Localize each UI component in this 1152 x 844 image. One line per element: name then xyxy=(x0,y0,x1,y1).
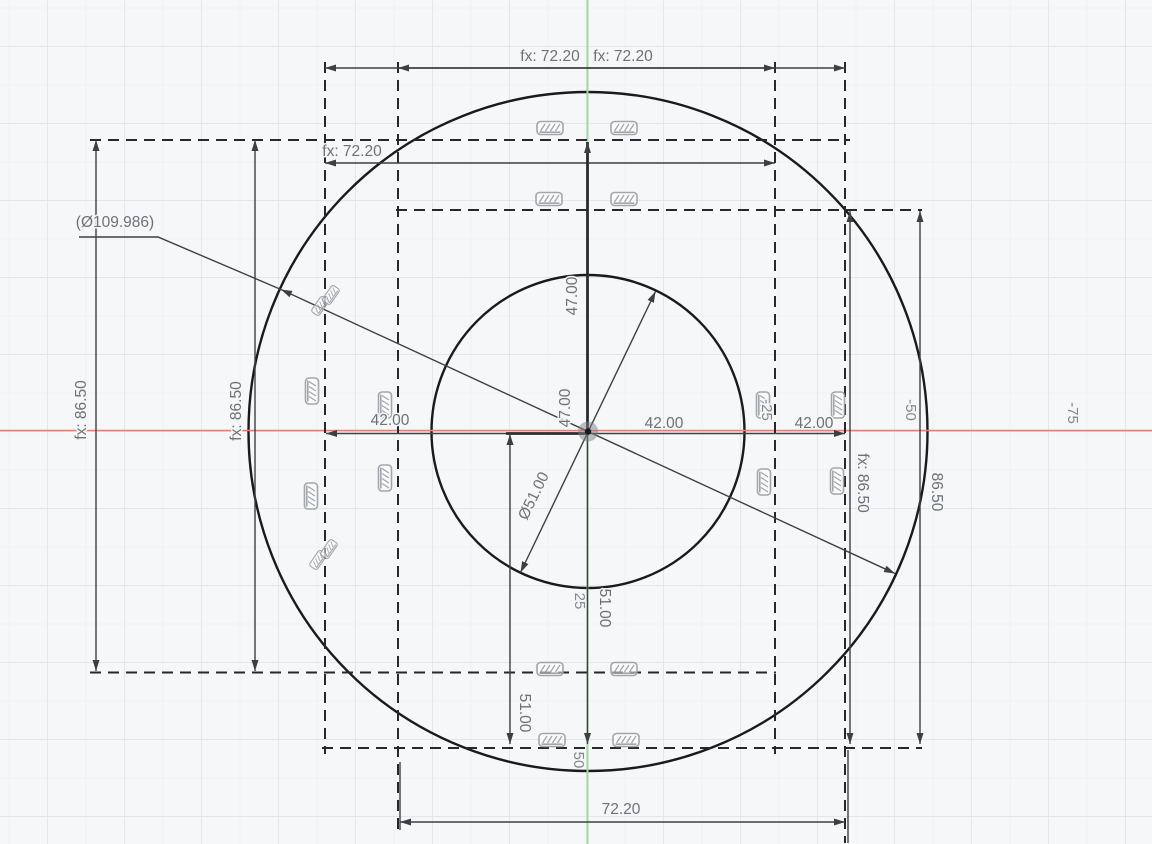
dim-label-top-width-b[interactable]: fx: 72.20 xyxy=(593,48,653,65)
dim-label-half-width-right-outer[interactable]: 42.00 xyxy=(795,415,834,432)
fixed-constraint-icon[interactable] xyxy=(306,378,319,404)
fixed-constraint-icon[interactable] xyxy=(832,392,845,418)
fixed-constraint-icon[interactable] xyxy=(537,122,563,135)
ruler-label-y-25: 25 xyxy=(571,593,588,610)
fixed-constraint-icon[interactable] xyxy=(758,469,771,495)
fixed-constraint-icon[interactable] xyxy=(611,663,637,676)
ruler-label-x-neg-75: -75 xyxy=(1064,402,1081,424)
ruler-label-x-neg-50: -50 xyxy=(902,399,919,421)
dim-label-inner-diameter[interactable]: Ø51.00 xyxy=(515,469,553,522)
fixed-constraint-icon[interactable] xyxy=(305,483,318,509)
fixed-constraint-icon[interactable] xyxy=(379,465,392,491)
dim-label-top-width-a[interactable]: fx: 72.20 xyxy=(520,48,580,65)
fixed-constraint-icon[interactable] xyxy=(613,734,639,747)
leader-outer-diameter[interactable] xyxy=(79,237,281,290)
dim-label-lower-height-left[interactable]: 51.00 xyxy=(516,694,533,733)
fixed-constraint-icon[interactable] xyxy=(539,734,565,747)
fixed-constraint-icon[interactable] xyxy=(537,663,563,676)
ruler-label-x-neg-25: -25 xyxy=(758,399,775,421)
dim-label-center-height-upper[interactable]: 47.00 xyxy=(564,276,581,315)
fixed-constraint-icon[interactable] xyxy=(320,539,338,560)
dim-label-left-height-inner[interactable]: fx: 86.50 xyxy=(228,381,245,441)
sketch-canvas[interactable]: fx: 72.20 fx: 72.20 fx: 72.20 (Ø109.986)… xyxy=(0,0,1152,844)
fixed-constraint-icon[interactable] xyxy=(831,468,844,494)
dim-label-upper-width[interactable]: fx: 72.20 xyxy=(322,143,382,160)
dim-label-half-width-left[interactable]: 42.00 xyxy=(371,412,410,429)
dim-label-half-width-right[interactable]: 42.00 xyxy=(645,415,684,432)
ruler-label-y-50: 50 xyxy=(570,752,587,769)
fixed-constraint-icon[interactable] xyxy=(536,193,562,206)
dim-label-bottom-width[interactable]: 72.20 xyxy=(602,801,641,818)
dim-label-right-height-inner[interactable]: fx: 86.50 xyxy=(854,453,871,513)
origin-point[interactable] xyxy=(585,428,591,434)
dim-label-center-height-lower[interactable]: 47.00 xyxy=(557,388,574,427)
dim-label-right-height-outer[interactable]: 86.50 xyxy=(928,473,945,512)
dim-label-lower-height-right[interactable]: 51.00 xyxy=(596,589,613,628)
fixed-constraint-icon[interactable] xyxy=(611,193,637,206)
fixed-constraint-icon[interactable] xyxy=(611,122,637,135)
dim-label-outer-diameter[interactable]: (Ø109.986) xyxy=(76,214,154,231)
dim-label-left-height-outer[interactable]: fx: 86.50 xyxy=(73,380,90,440)
